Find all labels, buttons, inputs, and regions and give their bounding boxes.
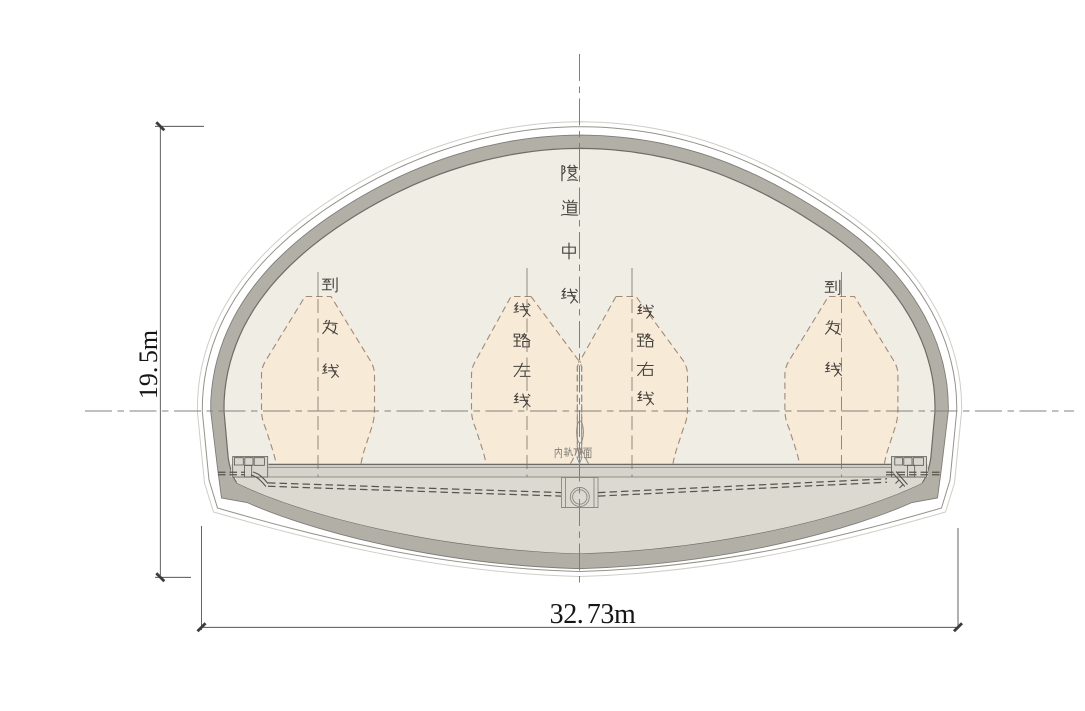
svg-text:32.73m: 32.73m bbox=[550, 599, 636, 630]
svg-text:19.5m: 19.5m bbox=[134, 330, 163, 399]
